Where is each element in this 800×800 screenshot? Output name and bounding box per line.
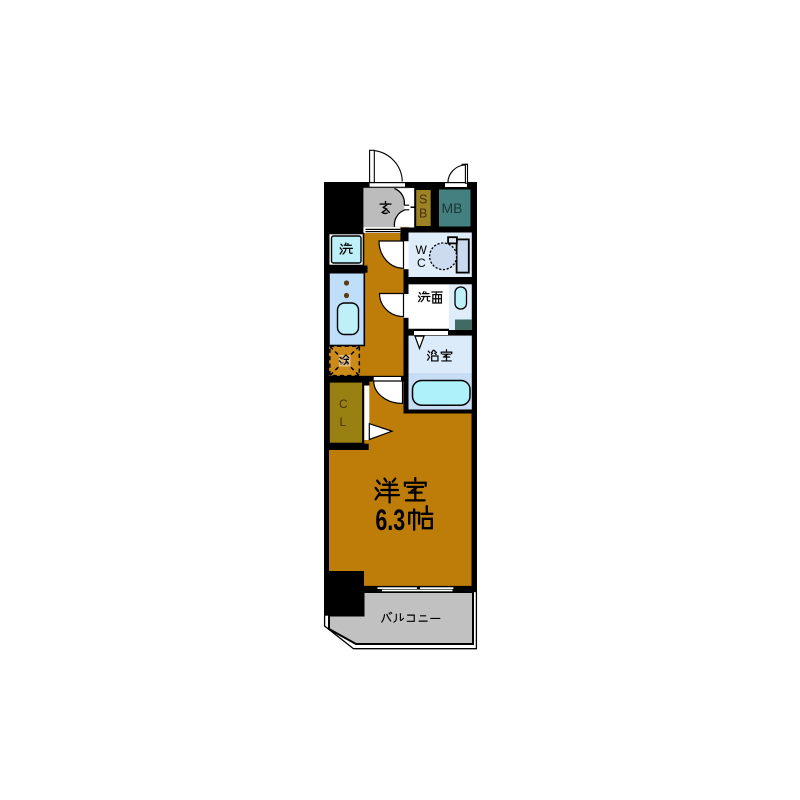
svg-text:S: S [419, 193, 427, 207]
svg-text:C: C [339, 397, 348, 411]
svg-text:B: B [419, 207, 427, 221]
svg-text:W: W [416, 243, 428, 257]
svg-text:MB: MB [442, 200, 463, 216]
svg-text:C: C [417, 256, 426, 270]
svg-text:L: L [340, 415, 347, 429]
svg-text:6.3: 6.3 [375, 504, 405, 537]
